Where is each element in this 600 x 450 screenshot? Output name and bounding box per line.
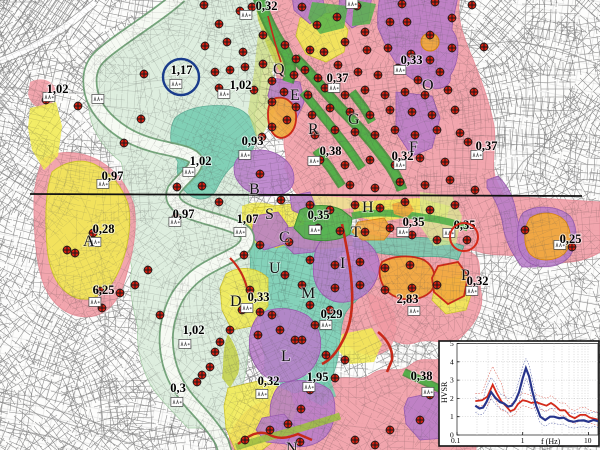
svg-text:D: D	[230, 293, 242, 310]
svg-text:2: 2	[450, 394, 454, 403]
svg-text:1,02: 1,02	[183, 323, 205, 337]
svg-text:0,38: 0,38	[411, 369, 433, 383]
svg-text:1,95: 1,95	[307, 370, 329, 384]
svg-text:3: 3	[450, 376, 454, 385]
svg-text:0,32: 0,32	[258, 374, 280, 388]
svg-text:0,29: 0,29	[321, 307, 343, 321]
svg-text:A: A	[83, 233, 95, 250]
svg-text:0,97: 0,97	[102, 169, 124, 183]
svg-text:0,38: 0,38	[320, 144, 342, 158]
svg-text:F: F	[409, 139, 418, 156]
svg-text:0,28: 0,28	[93, 222, 115, 236]
svg-text:E: E	[290, 87, 300, 104]
svg-text:H: H	[362, 199, 374, 216]
svg-text:0,33: 0,33	[401, 53, 423, 67]
svg-text:0,37: 0,37	[327, 71, 349, 85]
svg-text:M: M	[301, 285, 315, 302]
svg-text:O: O	[422, 77, 434, 94]
svg-text:Q: Q	[273, 61, 285, 78]
svg-text:S: S	[265, 206, 274, 223]
svg-text:HVSR: HVSR	[440, 381, 449, 403]
svg-text:2,83: 2,83	[397, 292, 419, 306]
svg-text:0,37: 0,37	[476, 139, 498, 153]
svg-text:0,3: 0,3	[170, 381, 186, 395]
svg-text:0,93: 0,93	[242, 134, 264, 148]
svg-text:1,17: 1,17	[171, 63, 193, 77]
svg-text:B: B	[249, 181, 260, 198]
svg-text:1: 1	[450, 412, 454, 421]
svg-text:10: 10	[584, 436, 592, 445]
svg-text:U: U	[269, 260, 281, 277]
svg-text:0,35: 0,35	[403, 215, 425, 229]
svg-text:T: T	[351, 224, 361, 241]
svg-text:I: I	[340, 255, 345, 272]
svg-text:N: N	[286, 440, 298, 450]
svg-text:4: 4	[450, 357, 454, 366]
svg-text:0,35: 0,35	[308, 208, 330, 222]
svg-text:1: 1	[521, 436, 525, 445]
svg-text:1,02: 1,02	[230, 78, 252, 92]
svg-text:0,25: 0,25	[560, 232, 582, 246]
svg-text:C: C	[279, 229, 290, 246]
svg-text:0,33: 0,33	[248, 290, 270, 304]
svg-text:P: P	[461, 267, 470, 284]
svg-text:0.1: 0.1	[451, 436, 461, 445]
svg-text:G: G	[348, 111, 360, 128]
svg-text:f (Hz): f (Hz)	[541, 437, 561, 446]
svg-text:0,97: 0,97	[173, 207, 195, 221]
svg-text:1,02: 1,02	[47, 82, 69, 96]
svg-text:1,02: 1,02	[190, 154, 212, 168]
svg-text:5: 5	[450, 339, 454, 348]
svg-text:0,32: 0,32	[256, 0, 278, 13]
svg-text:R: R	[308, 121, 319, 138]
svg-text:6,25: 6,25	[93, 283, 115, 297]
svg-text:L: L	[281, 348, 291, 365]
svg-text:1,07: 1,07	[237, 212, 259, 226]
